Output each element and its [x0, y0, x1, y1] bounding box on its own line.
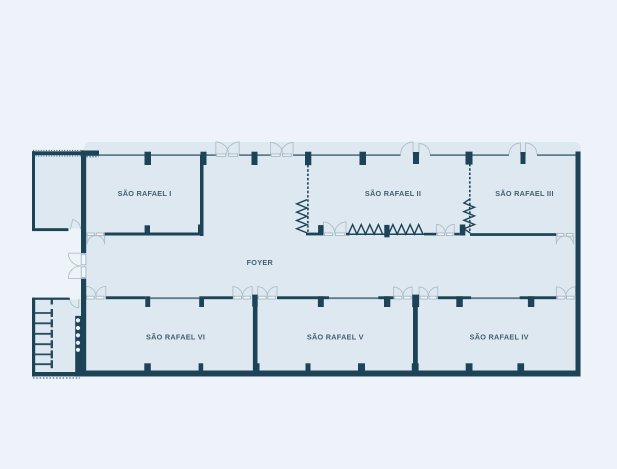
svg-text:SÃO RAFAEL I: SÃO RAFAEL I: [118, 189, 172, 198]
svg-text:SÃO RAFAEL VI: SÃO RAFAEL VI: [146, 333, 205, 342]
svg-text:SÃO RAFAEL III: SÃO RAFAEL III: [495, 189, 554, 198]
svg-text:SÃO RAFAEL V: SÃO RAFAEL V: [307, 333, 364, 342]
svg-text:FOYER: FOYER: [247, 258, 274, 267]
svg-text:SÃO RAFAEL IV: SÃO RAFAEL IV: [470, 333, 529, 342]
svg-text:SÃO RAFAEL II: SÃO RAFAEL II: [365, 189, 421, 198]
